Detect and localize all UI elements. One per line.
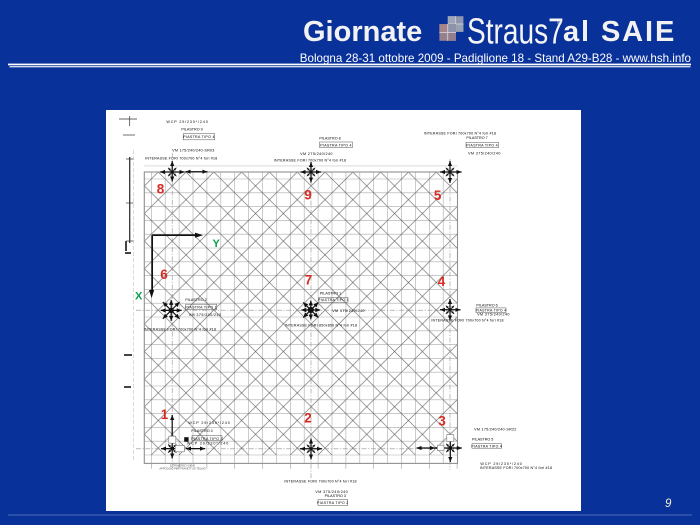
svg-text:VM 375/240/240: VM 375/240/240 <box>189 313 222 317</box>
svg-text:PILASTRO 6: PILASTRO 6 <box>476 303 497 307</box>
svg-text:PIASTRA TIPO 4: PIASTRA TIPO 4 <box>476 309 507 313</box>
svg-text:VM 375/240/240: VM 375/240/240 <box>477 313 510 317</box>
svg-text:WCP 29/230*/240: WCP 29/230*/240 <box>480 462 522 466</box>
svg-text:Straus7: Straus7 <box>467 11 564 51</box>
svg-text:PILASTRO 9: PILASTRO 9 <box>181 127 202 131</box>
svg-text:PIASTRA TIPO 1: PIASTRA TIPO 1 <box>318 298 349 302</box>
svg-text:5: 5 <box>434 188 442 203</box>
svg-text:VM 175/240/240-SR22: VM 175/240/240-SR22 <box>474 428 516 432</box>
svg-text:3: 3 <box>438 413 446 428</box>
svg-text:PILASTRO 4: PILASTRO 4 <box>191 429 212 433</box>
svg-text:INTERASSE FORI 700x700 N°4 for: INTERASSE FORI 700x700 N°4 fori #18 <box>480 466 552 470</box>
svg-text:7: 7 <box>305 272 313 287</box>
svg-text:INTERASSE FORI 700x700 N°4 for: INTERASSE FORI 700x700 N°4 fori #18 <box>424 132 496 136</box>
svg-text:VM 175/240/240-SR03: VM 175/240/240-SR03 <box>172 148 214 152</box>
svg-text:INTERASSE FORI 700x700 N°4 for: INTERASSE FORI 700x700 N°4 fori #18 <box>145 156 217 160</box>
svg-text:PIASTRA TIPO 4: PIASTRA TIPO 4 <box>320 143 352 147</box>
svg-text:X: X <box>135 291 143 303</box>
svg-text:1: 1 <box>161 407 169 422</box>
svg-text:PIASTRA TIPO 4: PIASTRA TIPO 4 <box>466 144 498 148</box>
svg-text:PIASTRA TIPO 1: PIASTRA TIPO 1 <box>185 305 217 309</box>
svg-text:INTERASSE FORI 850x850 N°4 for: INTERASSE FORI 850x850 N°4 fori #18 <box>285 324 357 328</box>
svg-text:PIASTRA TIPO 4: PIASTRA TIPO 4 <box>183 135 215 139</box>
svg-text:8: 8 <box>157 181 165 196</box>
svg-text:INTERASSE FORI 700x700 N°4 for: INTERASSE FORI 700x700 N°4 fori #18 <box>144 328 216 332</box>
svg-text:Giornate: Giornate <box>303 16 422 48</box>
svg-text:VM 375/240/240: VM 375/240/240 <box>332 309 365 313</box>
svg-text:INTERASSE FORI 700x700 N°4 for: INTERASSE FORI 700x700 N°4 fori #18 <box>431 318 503 322</box>
svg-text:PIASTRA TIPO 2: PIASTRA TIPO 2 <box>317 501 349 505</box>
svg-text:4: 4 <box>438 274 446 289</box>
svg-text:Bologna 28-31 ottobre 2009 - P: Bologna 28-31 ottobre 2009 - Padiglione … <box>300 52 691 65</box>
svg-text:WCP 29/230*/240: WCP 29/230*/240 <box>188 421 230 425</box>
svg-text:INTERASSE FORI 700x700 N°4 for: INTERASSE FORI 700x700 N°4 fori #18 <box>284 480 356 484</box>
svg-text:PILASTRO 3: PILASTRO 3 <box>325 494 346 498</box>
svg-text:VM 375/240/240: VM 375/240/240 <box>468 151 501 155</box>
svg-text:INTERASSE FORI 700x700 N°4 for: INTERASSE FORI 700x700 N°4 fori #18 <box>274 159 346 163</box>
svg-text:Y: Y <box>213 238 221 250</box>
svg-text:al SAIE: al SAIE <box>563 16 676 48</box>
svg-text:®: ® <box>557 19 562 27</box>
svg-text:6: 6 <box>160 267 168 282</box>
svg-text:VM 375/240/240: VM 375/240/240 <box>315 490 348 494</box>
svg-text:PILASTRO 8: PILASTRO 8 <box>319 136 340 140</box>
svg-text:PILASTRO 1: PILASTRO 1 <box>320 291 341 295</box>
svg-text:VM 275/240/240: VM 275/240/240 <box>300 152 333 156</box>
svg-text:9: 9 <box>665 498 672 510</box>
svg-text:WCP 29/230*/240: WCP 29/230*/240 <box>166 120 208 124</box>
svg-text:PIASTRA TIPO 4: PIASTRA TIPO 4 <box>471 444 502 448</box>
svg-text:PILASTRO 2: PILASTRO 2 <box>185 298 206 302</box>
svg-text:PIASTRA TIPO 3: PIASTRA TIPO 3 <box>191 437 223 441</box>
svg-text:PILASTRO 5: PILASTRO 5 <box>472 437 493 441</box>
svg-text:PILASTRO 7: PILASTRO 7 <box>466 136 487 140</box>
svg-text:WCP 29/230*/240: WCP 29/230*/240 <box>187 442 229 446</box>
svg-text:2: 2 <box>304 410 312 425</box>
svg-text:9: 9 <box>304 187 312 202</box>
